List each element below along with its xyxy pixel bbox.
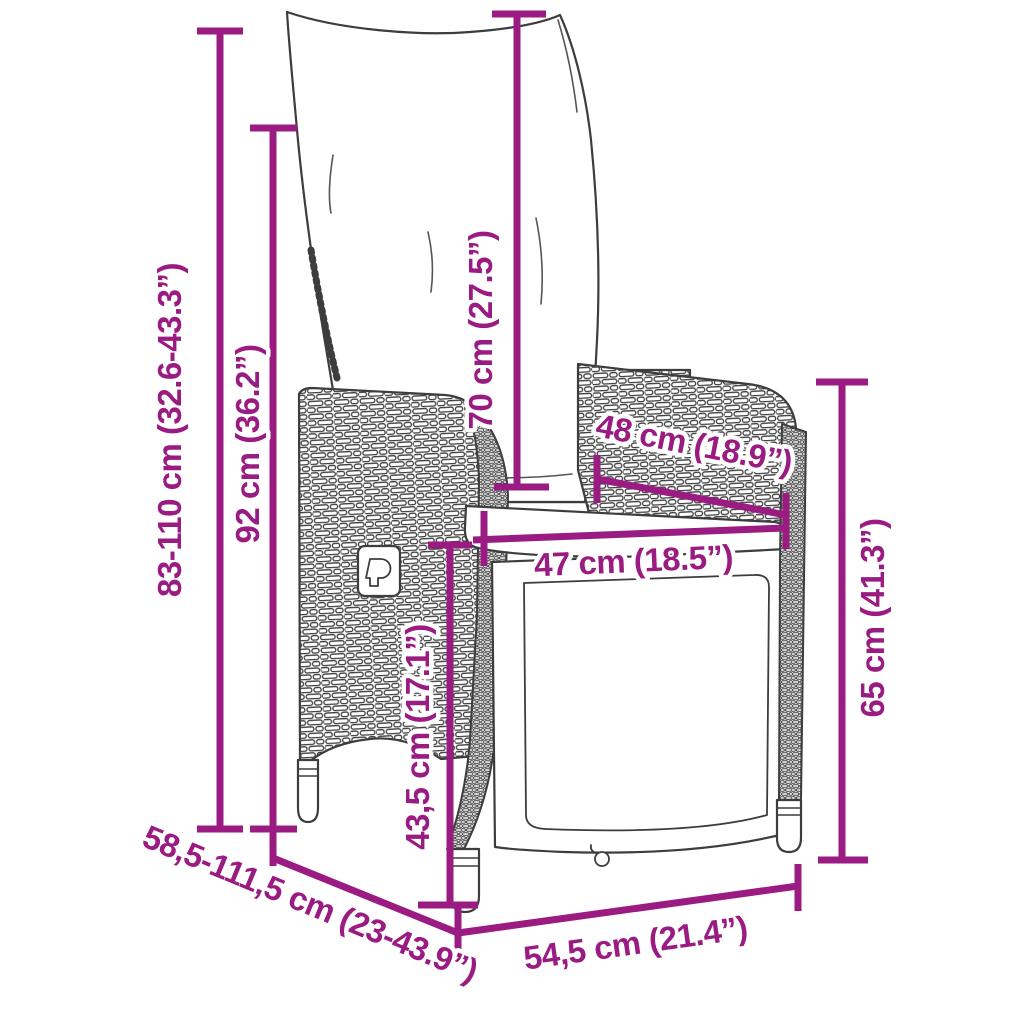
reclining-garden-chair-diagram: 83-110 cm (32.6-43.3”) 92 cm (36.2”) 70 …: [0, 0, 1024, 1024]
dim-label-total-height: 83-110 cm (32.6-43.3”): [151, 263, 188, 597]
dim-label-backrest-height: 92 cm (36.2”): [229, 345, 266, 544]
product-dimension-diagram: 83-110 cm (32.6-43.3”) 92 cm (36.2”) 70 …: [0, 0, 1024, 1024]
recline-latch: [358, 546, 400, 596]
dim-label-side-height: 65 cm (41.3”): [854, 519, 891, 718]
left-front-leg: [298, 760, 318, 822]
dim-label-back-cushion-length: 70 cm (27.5”): [462, 231, 499, 430]
dimension-line-base-width: [458, 864, 798, 933]
footrest-front-panel: [492, 549, 786, 853]
dim-label-seat-height: 43,5 cm (17.1”): [399, 624, 436, 849]
right-edge-rail: [779, 424, 806, 800]
right-front-leg: [777, 800, 801, 852]
